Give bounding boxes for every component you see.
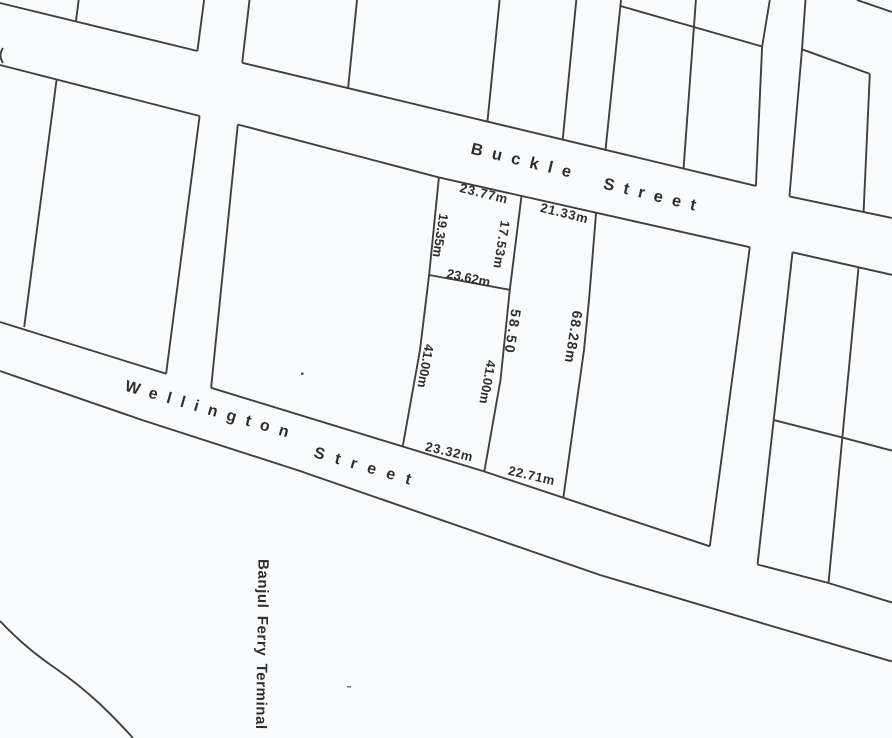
svg-text:Banjul Ferry Terminal: Banjul Ferry Terminal [252, 559, 271, 730]
